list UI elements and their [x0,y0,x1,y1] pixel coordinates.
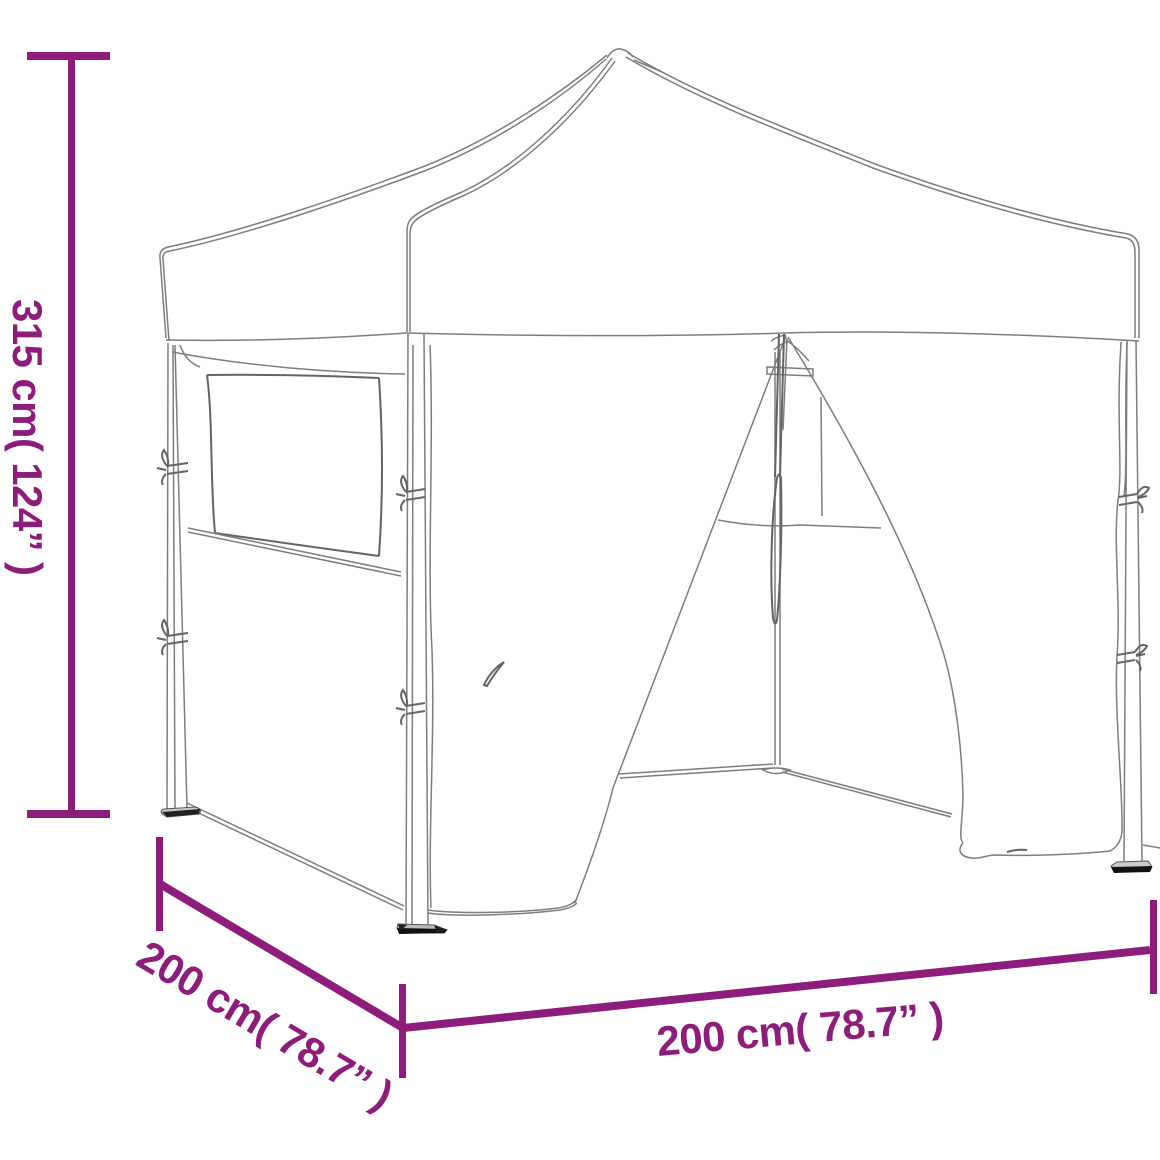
svg-text:200 cm( 78.7” ): 200 cm( 78.7” ) [655,993,946,1065]
svg-text:315 cm( 124” ): 315 cm( 124” ) [4,299,51,575]
svg-text:200 cm( 78.7” ): 200 cm( 78.7” ) [129,931,400,1118]
